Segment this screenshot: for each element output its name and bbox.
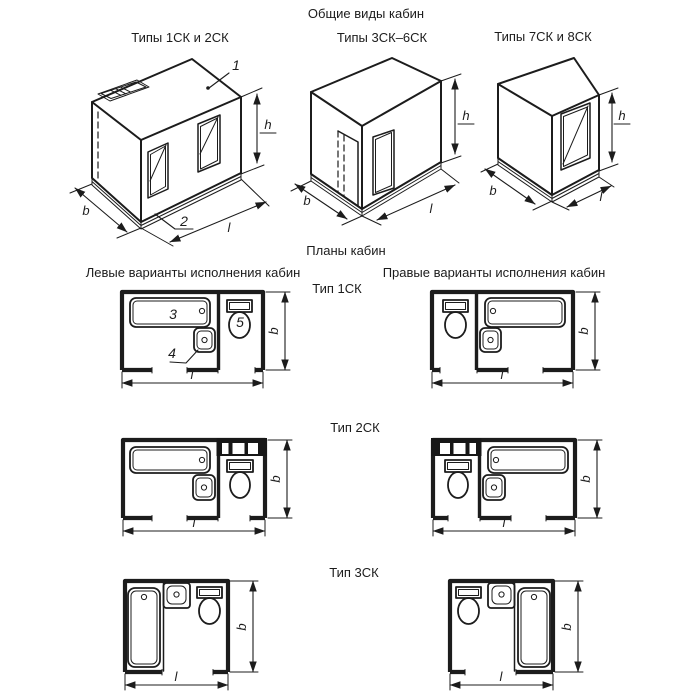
door-opening bbox=[373, 130, 394, 195]
plan-type-1sk-left: 3 4 5 l b bbox=[122, 292, 290, 388]
dimension-b: b bbox=[555, 581, 583, 672]
vent-grille bbox=[98, 80, 149, 101]
door-opening bbox=[148, 143, 168, 198]
callout-label-5-toilet: 5 bbox=[236, 314, 244, 330]
dim-label-l: l bbox=[175, 669, 179, 684]
dim-label-h: h bbox=[264, 117, 271, 132]
plan-type-1sk-right: l b bbox=[432, 292, 600, 388]
callout-label-2: 2 bbox=[179, 213, 188, 229]
dim-label-b: b bbox=[576, 327, 591, 334]
dim-label-b: b bbox=[82, 203, 89, 218]
dim-label-b: b bbox=[268, 475, 283, 482]
dimension-h: h bbox=[241, 88, 276, 174]
plan-type-2sk-right: l b bbox=[431, 438, 602, 536]
dim-label-b: b bbox=[489, 183, 496, 198]
plan-type-2sk-left: l b bbox=[123, 438, 292, 536]
plan-type-3sk-right: l b bbox=[450, 581, 583, 690]
plan-type-3sk-left: l b bbox=[125, 581, 258, 690]
dimension-b: b bbox=[268, 440, 292, 518]
dim-label-l: l bbox=[430, 201, 434, 216]
dim-label-l: l bbox=[228, 220, 232, 235]
callout-label-3-bathtub: 3 bbox=[169, 306, 177, 322]
dimension-b: b bbox=[578, 440, 602, 518]
dimension-h: h bbox=[441, 74, 474, 163]
iso-view-types-7sk-8sk: b l h bbox=[481, 58, 630, 210]
iso-view-types-1sk-2sk: 1 2 b l h bbox=[70, 57, 276, 246]
dim-label-h: h bbox=[618, 108, 625, 123]
dimension-b: b bbox=[266, 292, 290, 370]
base-plinth bbox=[498, 158, 599, 202]
dim-label-h: h bbox=[462, 108, 469, 123]
dimension-h: h bbox=[599, 88, 630, 171]
door-opening bbox=[198, 115, 220, 172]
dim-label-b: b bbox=[559, 623, 574, 630]
drawing-sheet: Общие виды кабин Типы 1СК и 2СК Типы 3СК… bbox=[0, 0, 700, 700]
door-opening bbox=[561, 103, 590, 170]
dimension-b: b bbox=[576, 292, 600, 370]
callout-label-1: 1 bbox=[232, 57, 240, 73]
dim-label-l: l bbox=[500, 669, 504, 684]
dim-label-b: b bbox=[303, 193, 310, 208]
dim-label-b: b bbox=[234, 623, 249, 630]
dimension-l: l bbox=[362, 169, 459, 225]
dim-label-l: l bbox=[600, 189, 604, 204]
dimension-b: b bbox=[230, 581, 258, 672]
dim-label-b: b bbox=[266, 327, 281, 334]
callout-label-4: 4 bbox=[168, 345, 176, 361]
iso-view-types-3sk-6sk: b l h bbox=[291, 58, 474, 225]
dimension-b: b bbox=[70, 184, 141, 238]
cabin-outline bbox=[498, 58, 599, 202]
drawing-svg: 1 2 b l h bbox=[0, 0, 700, 700]
dim-label-b: b bbox=[578, 475, 593, 482]
